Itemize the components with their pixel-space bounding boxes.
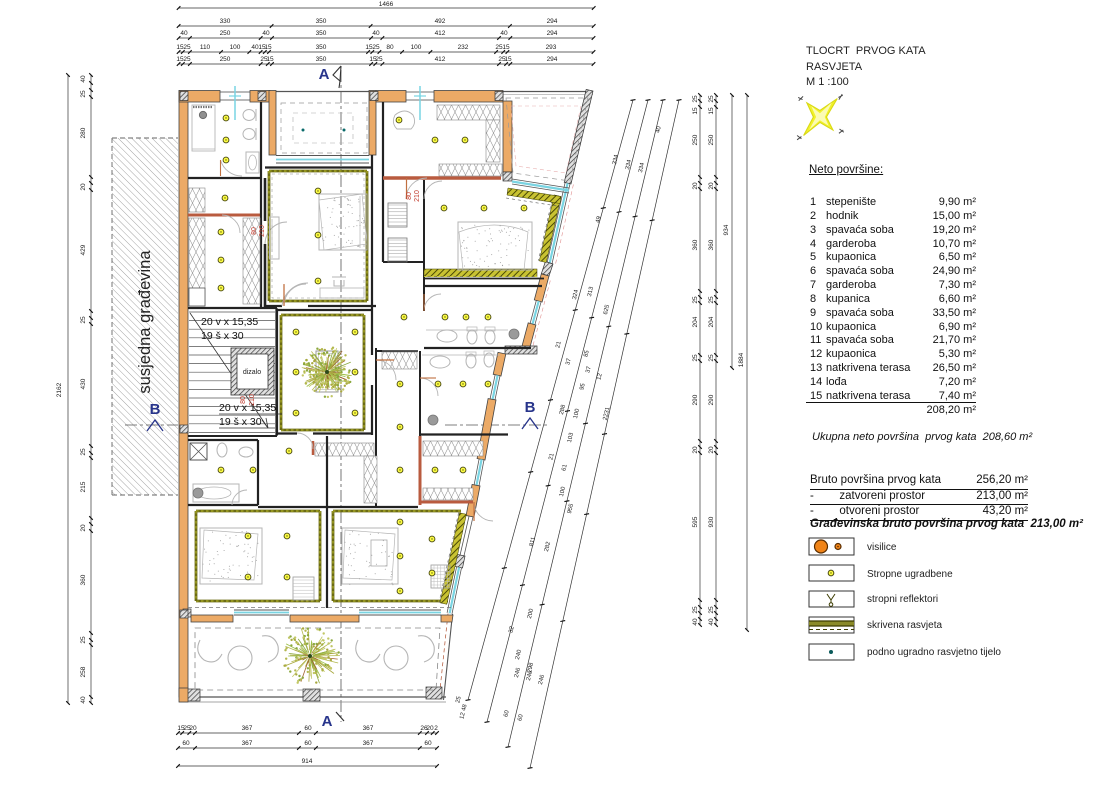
svg-text:25: 25 xyxy=(692,296,699,304)
svg-text:360: 360 xyxy=(80,574,87,585)
svg-text:20: 20 xyxy=(189,725,197,732)
svg-text:20: 20 xyxy=(692,446,699,454)
svg-text:20: 20 xyxy=(80,183,87,191)
svg-text:B: B xyxy=(525,399,536,416)
svg-text:25: 25 xyxy=(375,56,383,63)
svg-text:367: 367 xyxy=(363,725,374,732)
svg-text:294: 294 xyxy=(547,18,558,25)
svg-text:360: 360 xyxy=(708,239,715,250)
svg-text:40: 40 xyxy=(180,30,188,37)
svg-text:25: 25 xyxy=(80,316,87,324)
svg-text:podno ugradno rasvjetno tijelo: podno ugradno rasvjetno tijelo xyxy=(867,647,1001,658)
svg-text:25: 25 xyxy=(183,44,191,51)
svg-text:80: 80 xyxy=(251,227,258,235)
svg-text:19 š x 30: 19 š x 30 xyxy=(201,330,244,342)
svg-text:60: 60 xyxy=(304,740,312,747)
svg-text:80: 80 xyxy=(406,192,413,200)
svg-text:15: 15 xyxy=(266,56,274,63)
svg-text:visilice: visilice xyxy=(867,542,897,553)
svg-text:250: 250 xyxy=(220,56,231,63)
svg-text:15: 15 xyxy=(504,56,512,63)
svg-text:258: 258 xyxy=(80,666,87,677)
svg-text:25: 25 xyxy=(708,296,715,304)
svg-text:40: 40 xyxy=(708,618,715,626)
svg-text:25: 25 xyxy=(708,354,715,362)
svg-text:B: B xyxy=(150,401,161,418)
svg-text:2: 2 xyxy=(434,725,438,732)
svg-text:25: 25 xyxy=(692,95,699,103)
svg-text:280: 280 xyxy=(80,127,87,138)
svg-text:40: 40 xyxy=(500,30,508,37)
svg-text:429: 429 xyxy=(80,244,87,255)
svg-text:20: 20 xyxy=(426,725,434,732)
svg-text:100: 100 xyxy=(230,44,241,51)
svg-text:25: 25 xyxy=(708,95,715,103)
svg-text:15: 15 xyxy=(708,107,715,115)
svg-text:80: 80 xyxy=(240,396,247,404)
svg-text:20: 20 xyxy=(80,524,87,532)
svg-text:stropni reflektori: stropni reflektori xyxy=(867,594,938,605)
svg-text:25: 25 xyxy=(80,636,87,644)
svg-text:330: 330 xyxy=(220,18,231,25)
svg-text:20 v x 15,35: 20 v x 15,35 xyxy=(201,316,258,328)
svg-text:40: 40 xyxy=(80,75,87,83)
svg-text:110: 110 xyxy=(200,44,211,51)
svg-text:492: 492 xyxy=(435,18,446,25)
svg-text:20 v x 15,35: 20 v x 15,35 xyxy=(219,402,276,414)
svg-text:934: 934 xyxy=(723,224,730,235)
svg-text:100: 100 xyxy=(411,44,422,51)
svg-text:350: 350 xyxy=(316,44,327,51)
svg-text:2162: 2162 xyxy=(56,382,63,397)
svg-text:1466: 1466 xyxy=(379,1,394,8)
svg-text:40: 40 xyxy=(692,618,699,626)
svg-text:210: 210 xyxy=(259,225,266,237)
svg-text:210: 210 xyxy=(249,394,256,406)
svg-text:367: 367 xyxy=(242,725,253,732)
svg-text:25: 25 xyxy=(692,606,699,614)
svg-text:412: 412 xyxy=(435,56,446,63)
svg-text:20: 20 xyxy=(708,446,715,454)
svg-text:232: 232 xyxy=(458,44,469,51)
svg-text:367: 367 xyxy=(363,740,374,747)
svg-text:25: 25 xyxy=(372,44,380,51)
svg-text:294: 294 xyxy=(547,30,558,37)
svg-text:250: 250 xyxy=(220,30,231,37)
svg-text:293: 293 xyxy=(546,44,557,51)
svg-text:Stropne ugradbene: Stropne ugradbene xyxy=(867,569,953,580)
svg-text:290: 290 xyxy=(708,394,715,405)
svg-text:1884: 1884 xyxy=(738,352,745,367)
svg-text:25: 25 xyxy=(183,56,191,63)
svg-text:294: 294 xyxy=(547,56,558,63)
svg-text:250: 250 xyxy=(692,134,699,145)
svg-text:25: 25 xyxy=(80,448,87,456)
svg-text:A: A xyxy=(322,713,333,730)
svg-text:40: 40 xyxy=(80,696,87,704)
svg-text:914: 914 xyxy=(302,758,313,765)
svg-text:930: 930 xyxy=(708,516,715,527)
svg-text:360: 360 xyxy=(692,239,699,250)
svg-text:15: 15 xyxy=(502,44,510,51)
svg-text:367: 367 xyxy=(242,740,253,747)
svg-text:210: 210 xyxy=(414,190,421,202)
svg-text:40: 40 xyxy=(372,30,380,37)
svg-text:25: 25 xyxy=(80,90,87,98)
svg-text:204: 204 xyxy=(692,316,699,327)
svg-text:60: 60 xyxy=(424,740,432,747)
svg-text:20: 20 xyxy=(708,182,715,190)
svg-text:350: 350 xyxy=(316,30,327,37)
svg-text:430: 430 xyxy=(80,378,87,389)
svg-text:susjedna građevina: susjedna građevina xyxy=(136,250,154,394)
svg-text:25: 25 xyxy=(692,354,699,362)
svg-text:350: 350 xyxy=(316,18,327,25)
svg-text:215: 215 xyxy=(80,481,87,492)
svg-text:15: 15 xyxy=(264,44,272,51)
svg-text:skrivena rasvjeta: skrivena rasvjeta xyxy=(867,620,942,631)
svg-text:595: 595 xyxy=(692,516,699,527)
svg-text:412: 412 xyxy=(435,30,446,37)
svg-text:40: 40 xyxy=(262,30,270,37)
svg-text:60: 60 xyxy=(304,725,312,732)
svg-text:25: 25 xyxy=(708,606,715,614)
svg-text:dizalo: dizalo xyxy=(243,369,261,376)
svg-text:250: 250 xyxy=(708,134,715,145)
svg-text:20: 20 xyxy=(692,182,699,190)
svg-text:290: 290 xyxy=(692,394,699,405)
svg-text:204: 204 xyxy=(708,316,715,327)
svg-text:60: 60 xyxy=(182,740,190,747)
svg-text:19 š x 30: 19 š x 30 xyxy=(219,416,262,428)
svg-text:15: 15 xyxy=(692,107,699,115)
svg-text:80: 80 xyxy=(386,44,394,51)
svg-text:A: A xyxy=(319,66,330,83)
svg-text:350: 350 xyxy=(316,56,327,63)
